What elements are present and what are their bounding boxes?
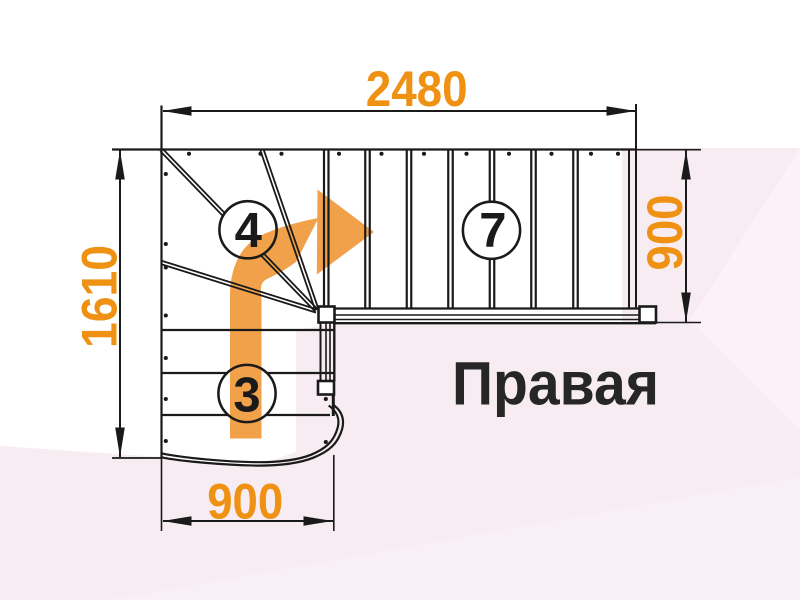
svg-text:4: 4 — [235, 204, 262, 258]
svg-text:2480: 2480 — [366, 61, 468, 117]
svg-text:900: 900 — [207, 474, 283, 530]
svg-text:7: 7 — [479, 204, 506, 258]
svg-text:900: 900 — [637, 195, 693, 271]
svg-text:3: 3 — [233, 369, 260, 423]
svg-text:Правая: Правая — [452, 350, 659, 418]
svg-text:1610: 1610 — [72, 245, 128, 348]
